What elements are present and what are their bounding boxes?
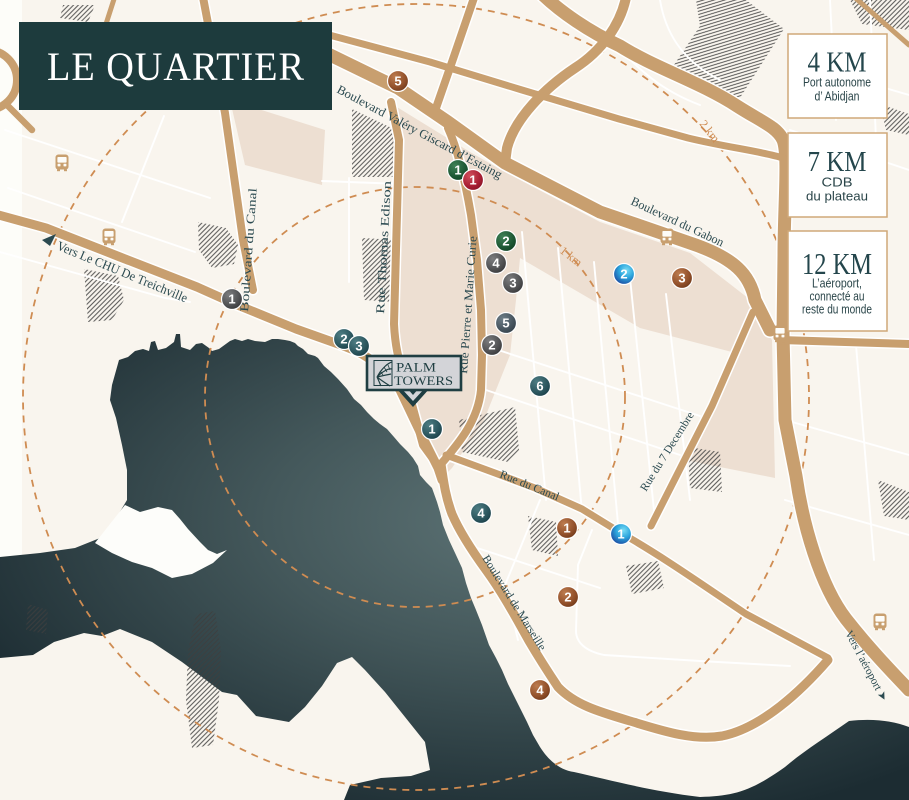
svg-text:1: 1 [454, 163, 461, 178]
svg-text:5: 5 [394, 74, 401, 89]
svg-text:4: 4 [477, 506, 485, 521]
svg-text:3: 3 [678, 271, 685, 286]
svg-text:2: 2 [564, 590, 571, 605]
svg-text:LE QUARTIER: LE QUARTIER [47, 44, 305, 89]
svg-text:6: 6 [536, 379, 543, 394]
svg-text:TOWERS: TOWERS [394, 374, 453, 388]
svg-text:2: 2 [340, 332, 347, 347]
svg-text:4: 4 [492, 256, 500, 271]
svg-text:7 KM: 7 KM [808, 146, 867, 178]
svg-text:CDB: CDB [822, 175, 853, 190]
svg-text:Port autonome: Port autonome [803, 75, 871, 90]
svg-text:4: 4 [536, 683, 544, 698]
svg-text:2: 2 [502, 234, 509, 249]
svg-text:1: 1 [563, 521, 570, 536]
svg-text:du plateau: du plateau [806, 189, 868, 204]
svg-text:d’ Abidjan: d’ Abidjan [815, 89, 860, 104]
svg-text:2: 2 [488, 338, 495, 353]
svg-text:reste du monde: reste du monde [802, 302, 872, 317]
svg-text:2: 2 [620, 267, 627, 282]
svg-text:1: 1 [428, 422, 435, 437]
svg-text:3: 3 [355, 339, 362, 354]
svg-text:1: 1 [228, 292, 235, 307]
svg-text:3: 3 [509, 276, 516, 291]
svg-text:1: 1 [617, 527, 624, 542]
svg-text:1: 1 [469, 173, 476, 188]
svg-text:5: 5 [502, 316, 509, 331]
svg-text:PALM: PALM [396, 361, 436, 375]
